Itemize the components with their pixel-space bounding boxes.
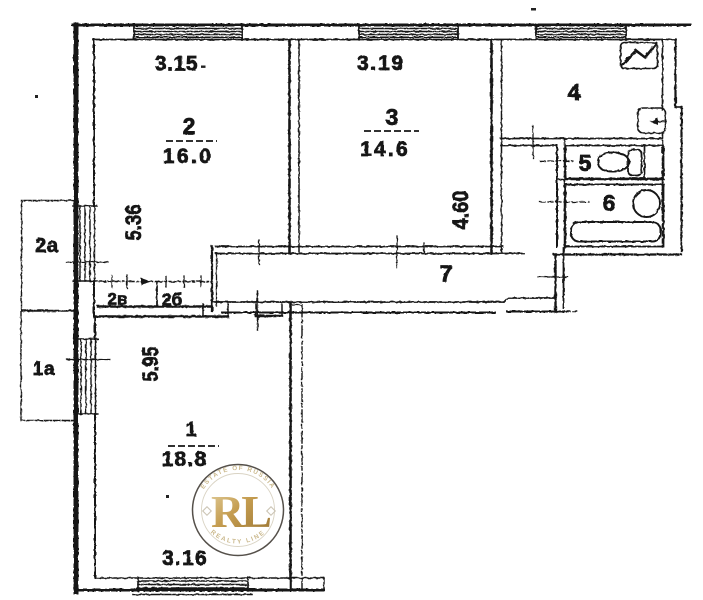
svg-text:2в: 2в [108,290,128,309]
svg-text:3: 3 [386,104,399,130]
svg-text:1а: 1а [33,359,56,380]
svg-text:1: 1 [185,419,196,441]
svg-text:3.16: 3.16 [162,547,208,570]
svg-text:5: 5 [579,150,592,176]
svg-text:14.6: 14.6 [360,138,410,161]
svg-text:7: 7 [440,261,453,287]
svg-text:3.15: 3.15 [155,53,198,76]
svg-text:16.0: 16.0 [163,145,213,168]
svg-text:2: 2 [183,113,196,139]
svg-text:18.8: 18.8 [162,448,208,471]
svg-text:6: 6 [603,190,616,216]
svg-text:3.19: 3.19 [357,52,405,75]
svg-text:5.95: 5.95 [138,347,163,382]
svg-text:RL: RL [211,486,270,537]
svg-text:4: 4 [568,79,581,105]
svg-text:2б: 2б [162,290,183,310]
svg-text:5.36: 5.36 [121,205,146,241]
svg-text:2а: 2а [35,235,59,257]
svg-text:4.60: 4.60 [448,191,473,230]
